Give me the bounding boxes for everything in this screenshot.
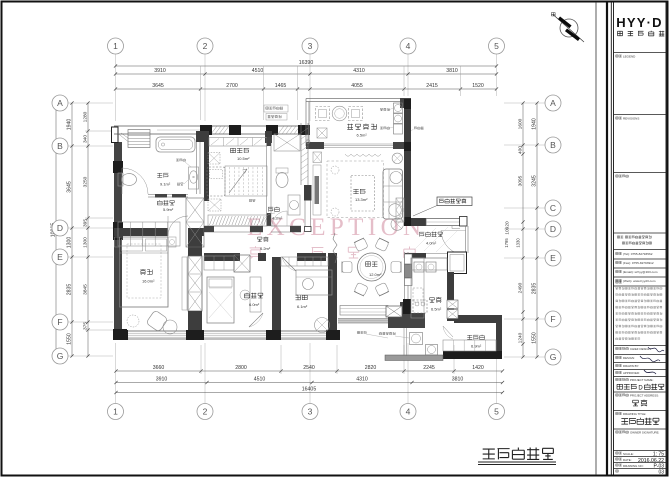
svg-text:(Email): szhyy@163.com: (Email): szhyy@163.com xyxy=(623,270,658,274)
svg-text:1600: 1600 xyxy=(518,118,524,129)
svg-text:DRAWING NO:: DRAWING NO: xyxy=(623,464,644,468)
svg-text:6.5m²: 6.5m² xyxy=(431,307,442,312)
svg-text:D: D xyxy=(57,223,63,233)
svg-text:2835: 2835 xyxy=(67,284,73,296)
svg-text:1: 1 xyxy=(113,41,118,51)
svg-text:G: G xyxy=(57,351,64,361)
svg-text:2490: 2490 xyxy=(518,282,524,293)
svg-text:DRAWN BY:: DRAWN BY: xyxy=(623,364,639,368)
svg-text:1550: 1550 xyxy=(532,332,538,344)
svg-text:2820: 2820 xyxy=(365,365,377,371)
svg-text:12.0m²: 12.0m² xyxy=(369,272,382,277)
svg-text:3245: 3245 xyxy=(532,175,538,187)
svg-text:1300: 1300 xyxy=(67,237,73,249)
svg-text:5: 5 xyxy=(494,41,499,51)
svg-text:1465: 1465 xyxy=(275,83,287,89)
svg-text:(Web): www.hyyd3.com: (Web): www.hyyd3.com xyxy=(623,279,656,283)
svg-text:F: F xyxy=(57,317,62,327)
svg-text:APPROVED:: APPROVED: xyxy=(623,371,640,375)
svg-text:5.9m²: 5.9m² xyxy=(163,207,174,212)
svg-text:PROJECT ADDRESS:: PROJECT ADDRESS: xyxy=(630,394,659,398)
svg-text:2700: 2700 xyxy=(226,83,238,89)
svg-text:1795: 1795 xyxy=(504,238,509,248)
svg-text:13.3m²: 13.3m² xyxy=(355,197,368,202)
svg-text:16.0m²: 16.0m² xyxy=(142,279,155,284)
svg-text:G: G xyxy=(550,352,557,362)
svg-text:340: 340 xyxy=(83,135,89,143)
svg-text:3250: 3250 xyxy=(83,176,89,187)
svg-text:3810: 3810 xyxy=(452,377,464,383)
svg-text:HYY·D: HYY·D xyxy=(616,15,662,30)
svg-text:6.2m²: 6.2m² xyxy=(260,246,271,251)
svg-text:4310: 4310 xyxy=(356,377,368,383)
svg-text:2540: 2540 xyxy=(303,365,315,371)
svg-text:D: D xyxy=(638,386,643,392)
svg-text:F: F xyxy=(550,314,555,324)
svg-text:SCALE:: SCALE: xyxy=(623,452,634,456)
svg-text:4510: 4510 xyxy=(254,377,266,383)
svg-text:(Tel): 0755-82793562: (Tel): 0755-82793562 xyxy=(623,252,653,256)
svg-text:4: 4 xyxy=(406,41,411,51)
svg-text:4510: 4510 xyxy=(252,68,264,74)
svg-text:DATE:: DATE: xyxy=(623,458,632,462)
svg-text:DRAWING TITLE:: DRAWING TITLE: xyxy=(623,412,646,416)
svg-text:E: E xyxy=(550,253,556,263)
svg-text:1420: 1420 xyxy=(472,365,484,371)
svg-text:3095: 3095 xyxy=(518,175,524,186)
svg-text:10920: 10920 xyxy=(505,221,511,235)
svg-text:3645: 3645 xyxy=(67,181,73,193)
svg-text:C: C xyxy=(550,203,556,213)
svg-text:4: 4 xyxy=(406,406,411,416)
svg-text:1330: 1330 xyxy=(516,238,521,248)
svg-text:(Fax): 0755-82793912: (Fax): 0755-82793912 xyxy=(623,261,654,265)
svg-text:4.2m²: 4.2m² xyxy=(272,216,283,221)
svg-text:2835: 2835 xyxy=(532,283,538,295)
svg-text:395: 395 xyxy=(83,219,89,227)
svg-text:9.1m²: 9.1m² xyxy=(160,182,171,187)
svg-text:2: 2 xyxy=(203,406,208,416)
svg-text:A: A xyxy=(550,98,556,108)
svg-text:E: E xyxy=(57,252,63,262)
svg-text:OWNER SIGNATURE:: OWNER SIGNATURE: xyxy=(630,431,660,435)
svg-text:2800: 2800 xyxy=(235,365,247,371)
svg-text:3660: 3660 xyxy=(153,365,165,371)
svg-text:3: 3 xyxy=(308,406,313,416)
svg-text:2245: 2245 xyxy=(423,365,435,371)
svg-text:4310: 4310 xyxy=(353,68,365,74)
svg-text:1280: 1280 xyxy=(83,111,89,122)
svg-text:5: 5 xyxy=(494,406,499,416)
svg-text:1240: 1240 xyxy=(518,332,524,343)
svg-text:D: D xyxy=(550,224,556,234)
svg-text:1940: 1940 xyxy=(532,118,538,130)
svg-text:3645: 3645 xyxy=(152,83,164,89)
svg-text:6.1m²: 6.1m² xyxy=(297,304,308,309)
svg-text:1520: 1520 xyxy=(472,83,484,89)
svg-text:3845: 3845 xyxy=(83,284,89,295)
svg-text:REVISIONS: REVISIONS xyxy=(623,116,639,120)
svg-text:3: 3 xyxy=(308,41,313,51)
svg-text:B: B xyxy=(57,141,63,151)
svg-text:PROJECT NAME:: PROJECT NAME: xyxy=(630,378,654,382)
svg-text:DESIGN:: DESIGN: xyxy=(623,356,635,360)
svg-text:4055: 4055 xyxy=(351,83,363,89)
svg-text:1940: 1940 xyxy=(67,119,73,131)
svg-text:6.5m²: 6.5m² xyxy=(357,133,368,138)
svg-text:A: A xyxy=(57,98,63,108)
svg-text:3810: 3810 xyxy=(446,68,458,74)
svg-text:6.9m²: 6.9m² xyxy=(471,344,482,349)
svg-text:2415: 2415 xyxy=(426,83,438,89)
svg-text:4.0m²: 4.0m² xyxy=(426,241,437,246)
svg-text:10.5m²: 10.5m² xyxy=(237,156,250,161)
svg-text:1300: 1300 xyxy=(83,237,89,248)
svg-text:2: 2 xyxy=(203,41,208,51)
svg-text:16390: 16390 xyxy=(299,60,314,66)
svg-text:03: 03 xyxy=(658,470,664,476)
svg-text:LEGEND: LEGEND xyxy=(623,54,636,58)
svg-text:16405: 16405 xyxy=(302,387,317,393)
svg-text:B: B xyxy=(550,140,556,150)
svg-text:1: 1 xyxy=(113,406,118,416)
svg-text:375: 375 xyxy=(83,322,89,330)
svg-text:3910: 3910 xyxy=(154,68,166,74)
svg-text:400: 400 xyxy=(518,146,524,154)
svg-text:6.0m²: 6.0m² xyxy=(249,302,260,307)
svg-text:3910: 3910 xyxy=(156,377,168,383)
svg-text:1550: 1550 xyxy=(67,333,73,345)
